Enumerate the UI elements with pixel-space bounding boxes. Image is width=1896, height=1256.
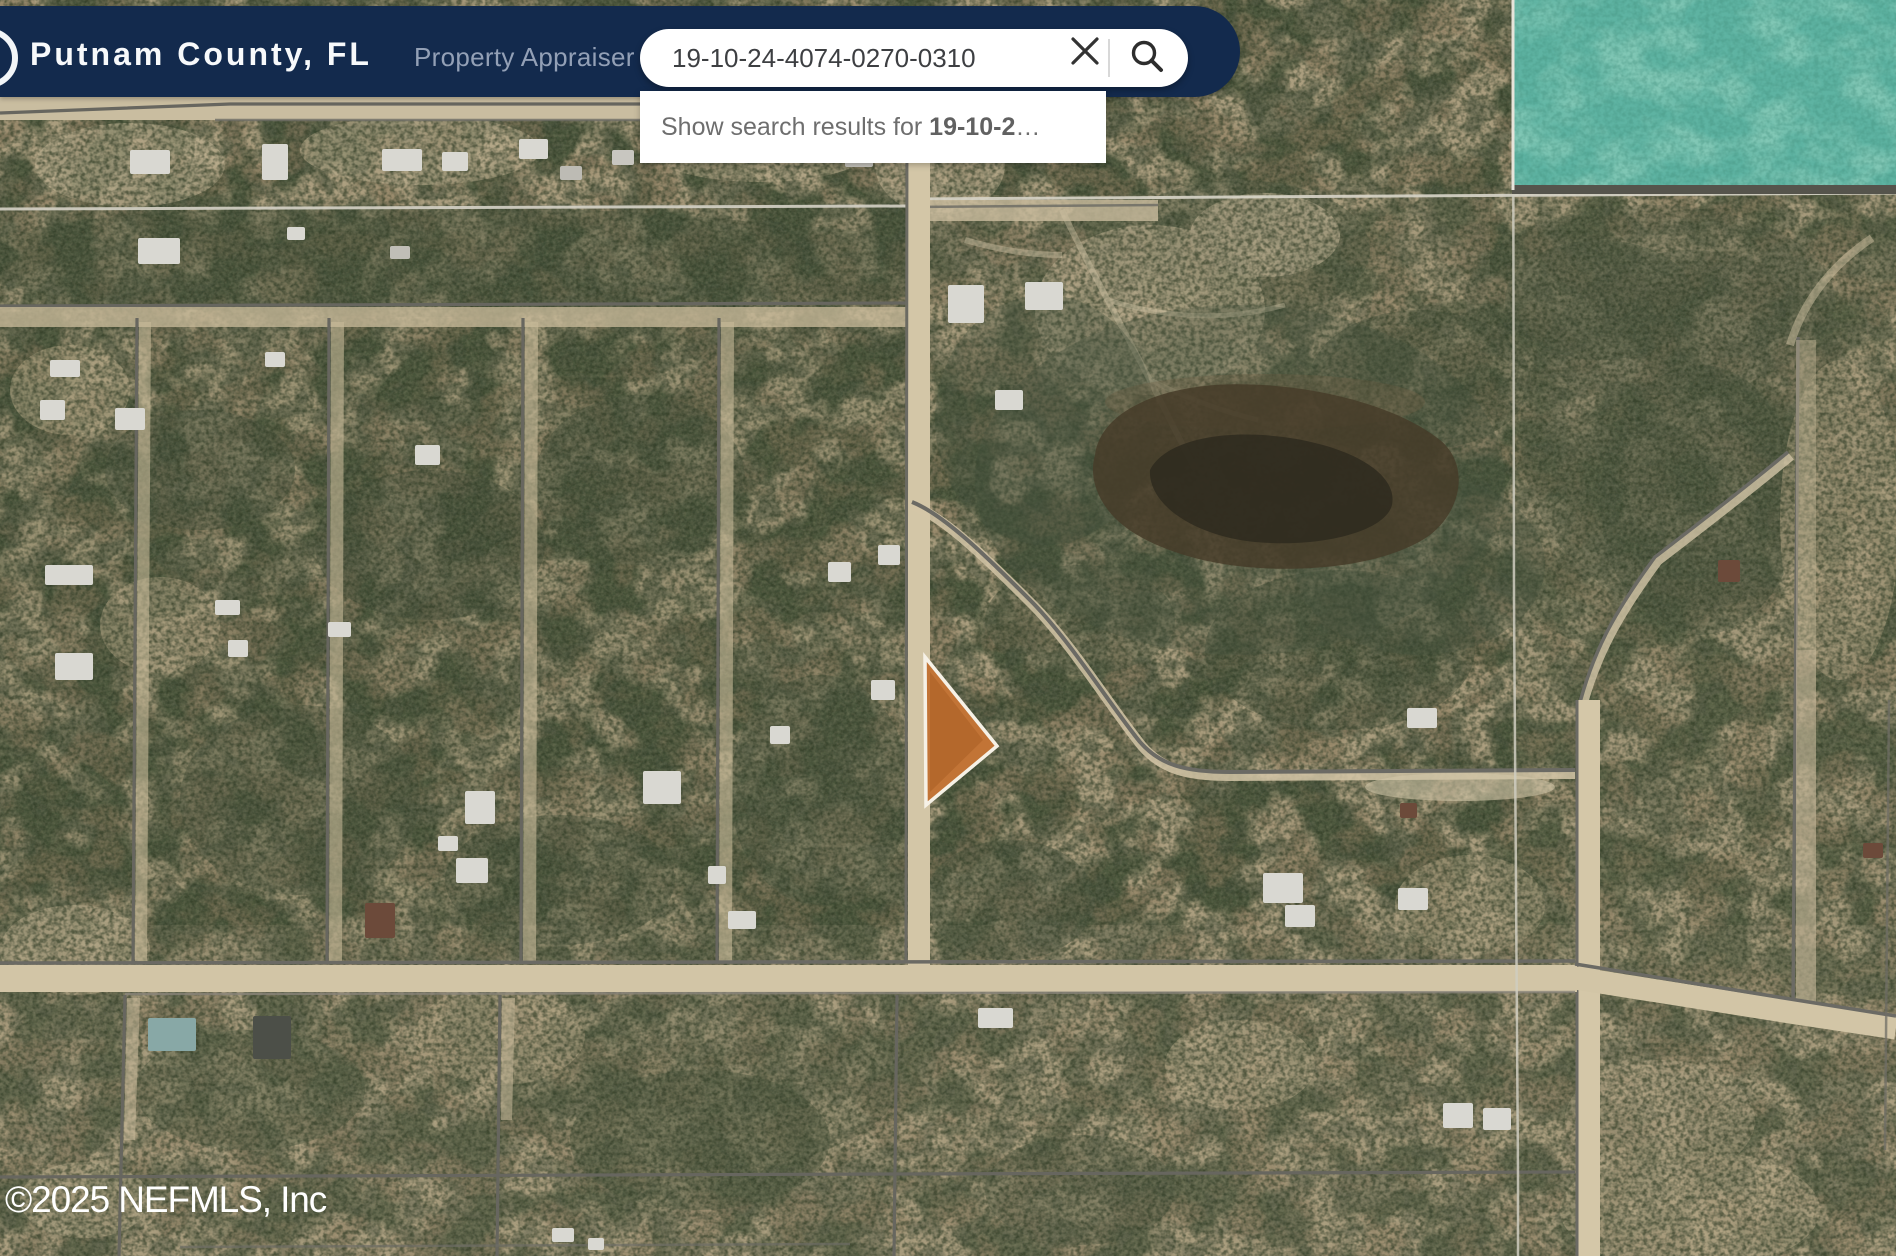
- svg-text:©2025 NEFMLS, Inc: ©2025 NEFMLS, Inc: [5, 1179, 327, 1220]
